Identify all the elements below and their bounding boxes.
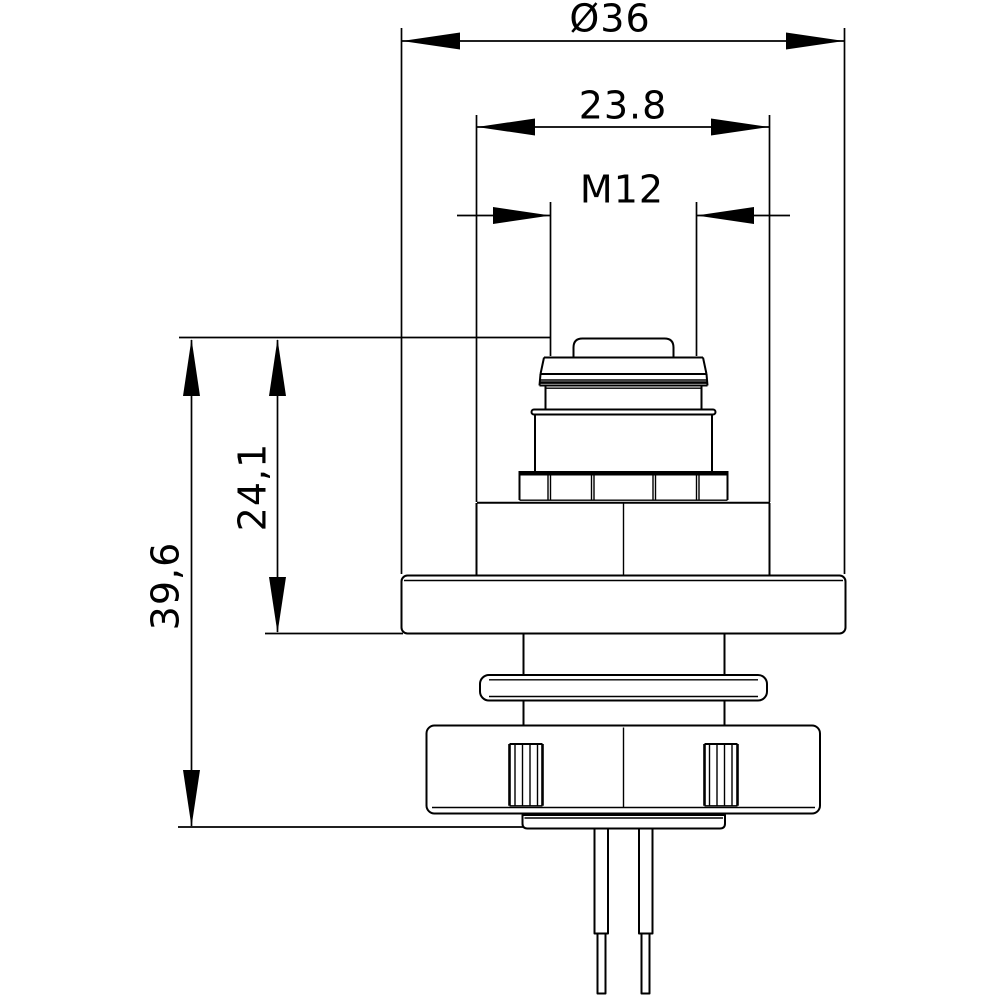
- button-bezel: [540, 358, 708, 386]
- arrowhead-head-dia-left: [477, 119, 535, 136]
- arrowhead-upper-height-top: [269, 339, 286, 396]
- outer-diameter-label: Ø36: [569, 0, 650, 41]
- mounting-nut: [427, 726, 821, 814]
- seal-washer: [480, 675, 767, 701]
- arrowhead-thread-left: [493, 207, 551, 224]
- hex-nut: [519, 473, 729, 500]
- head-diameter-label: 23.8: [579, 84, 668, 128]
- dimension-arrows: [183, 33, 844, 827]
- component-outline: [402, 339, 846, 994]
- arrowhead-overall-height-top: [183, 339, 200, 396]
- flange-outline: [402, 576, 846, 634]
- upper-housing: [535, 415, 712, 472]
- mounting-flange: [402, 576, 846, 634]
- base-plate-outline: [523, 815, 726, 829]
- hex-nut-facet-lines: [548, 476, 699, 501]
- arrowhead-upper-height-bottom: [269, 577, 286, 633]
- arrowhead-outer-dia-left: [402, 33, 460, 50]
- lower-body: [477, 503, 771, 575]
- knurl-slot-left-grooves: [515, 744, 538, 806]
- collar-ring: [532, 410, 716, 415]
- knurl-slot-right-grooves: [710, 744, 733, 806]
- arrowhead-head-dia-right: [711, 119, 769, 136]
- terminal-pin-right-upper: [639, 829, 653, 934]
- button-neck: [546, 386, 702, 410]
- dimension-lines: [192, 41, 845, 826]
- pushbutton-dimension-drawing: Ø36 23.8 M12 39,6 24,1: [0, 0, 1000, 1000]
- terminal-pins: [595, 829, 653, 994]
- terminal-pin-left-upper: [595, 829, 609, 934]
- bezel-left-side: [541, 358, 545, 375]
- button-cap: [574, 339, 674, 358]
- upper-height-label: 24,1: [231, 443, 275, 532]
- bezel-right-side: [703, 358, 707, 375]
- overall-height-label: 39,6: [144, 542, 188, 631]
- arrowhead-thread-right: [697, 207, 755, 224]
- knurl-slot-right: [705, 744, 738, 806]
- thread-size-label: M12: [580, 168, 664, 212]
- terminal-pin-right-lower: [642, 934, 650, 994]
- base-plate: [523, 815, 726, 829]
- knurl-slot-left: [510, 744, 543, 806]
- reference-lines: [178, 338, 551, 828]
- technical-drawing-canvas: Ø36 23.8 M12 39,6 24,1: [0, 0, 1000, 1000]
- terminal-pin-left-lower: [598, 934, 606, 994]
- arrowhead-outer-dia-right: [786, 33, 844, 50]
- arrowhead-overall-height-bottom: [183, 770, 200, 827]
